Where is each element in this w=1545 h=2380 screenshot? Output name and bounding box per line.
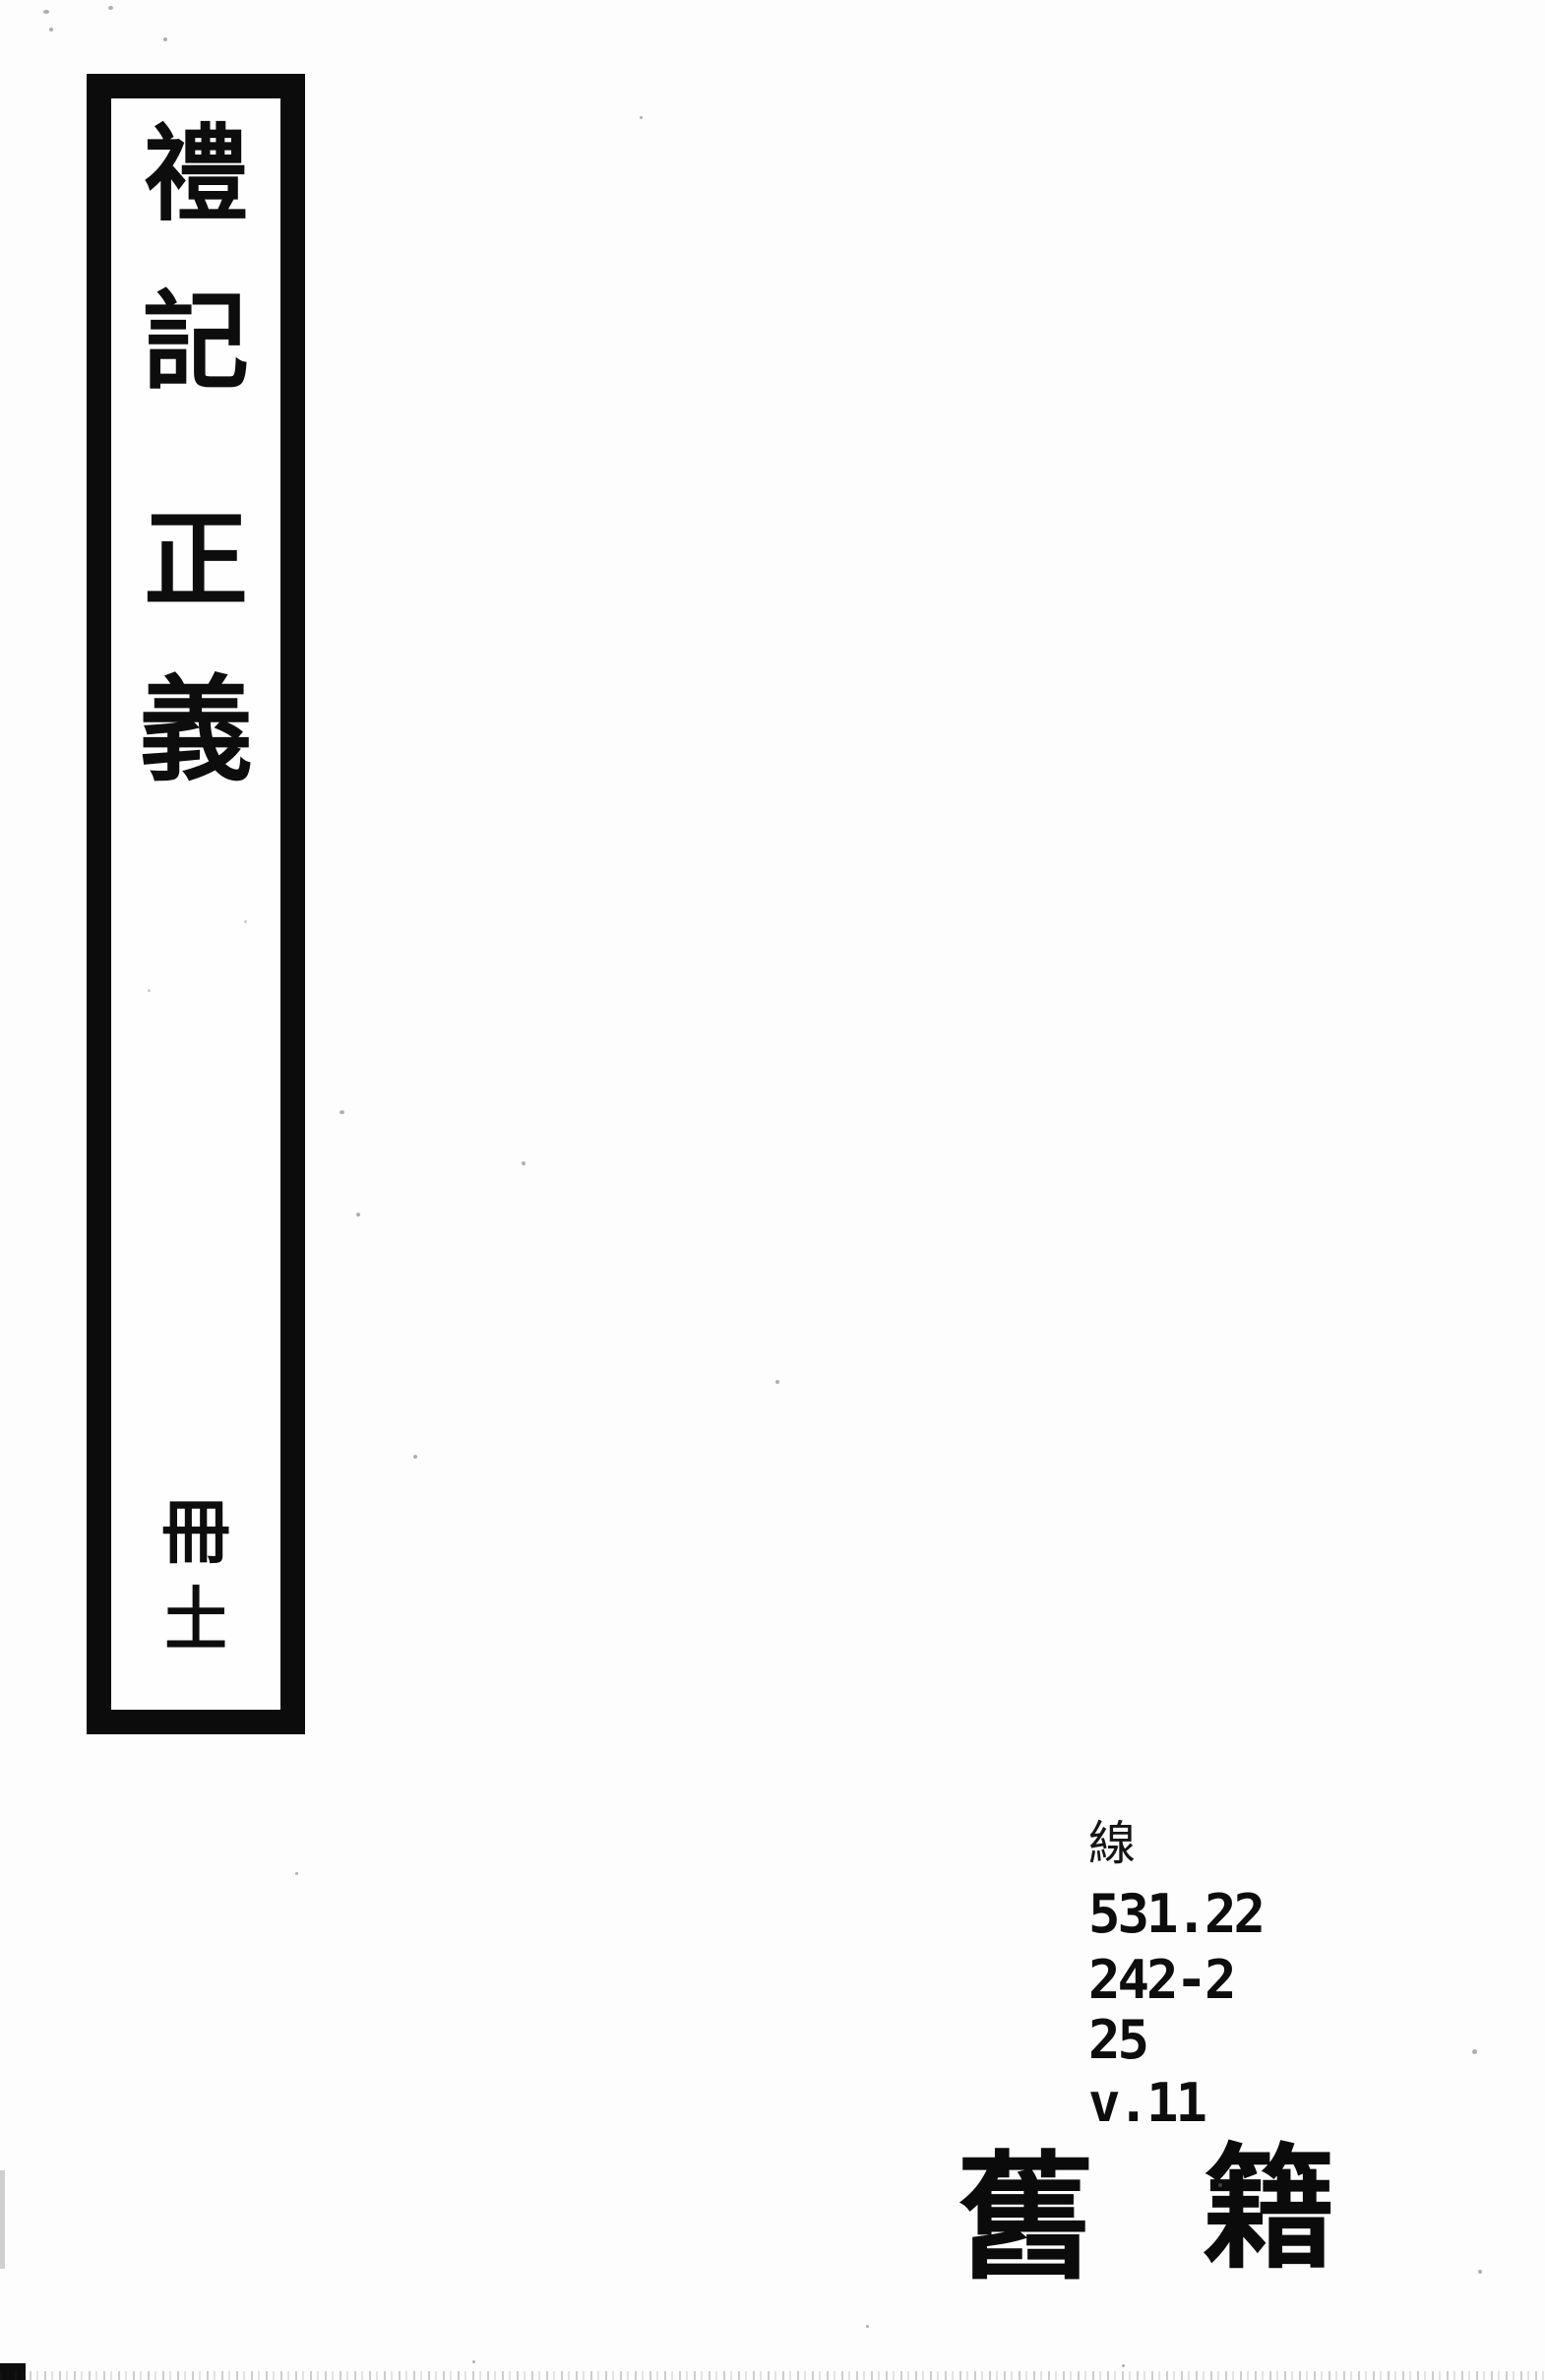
scan-bottom-noise [0, 2371, 1545, 2380]
title-char-3: 正 [144, 510, 248, 614]
call-number-line-3: 25 [1088, 2014, 1146, 2067]
scan-speck [356, 1213, 360, 1217]
scan-speck [472, 2360, 475, 2363]
stamp-char-2: 籍 [1203, 2144, 1336, 2278]
call-number-line-2: 242-2 [1088, 1954, 1234, 2007]
volume-char-3: 一 [165, 1617, 226, 1678]
scan-speck [1472, 2049, 1477, 2054]
title-char-2: 記 [143, 291, 249, 398]
scan-speck [1478, 2270, 1482, 2274]
call-number-line-1: 531.22 [1088, 1888, 1263, 1941]
title-char-4: 義 [139, 675, 253, 789]
scan-speck [108, 6, 113, 10]
title-char-1: 禮 [144, 124, 248, 228]
stamp-char-1: 舊 [957, 2152, 1094, 2289]
scan-speck [522, 1161, 525, 1165]
call-number-material-label: 線 [1088, 1821, 1136, 1868]
scan-speck [640, 116, 643, 119]
volume-char-1: 冊 [161, 1500, 230, 1569]
scan-speck [43, 10, 49, 14]
scan-speck [244, 920, 247, 923]
scan-speck [340, 1110, 344, 1114]
scan-edge-smudge [0, 2170, 5, 2269]
scan-speck [775, 1380, 779, 1384]
scan-speck [1218, 2183, 1222, 2187]
scan-speck [148, 989, 151, 992]
call-number-line-4: v.11 [1088, 2077, 1205, 2130]
scanned-page: 禮 記 正 義 冊 十 一 線 531.22 242-2 25 v.11 舊 籍 [0, 0, 1545, 2380]
spine-label-box: 禮 記 正 義 冊 十 一 [87, 74, 305, 1734]
scan-speck [413, 1455, 417, 1459]
scan-speck [1122, 2364, 1125, 2367]
scan-speck [295, 1872, 298, 1875]
scan-speck [163, 37, 167, 41]
scan-speck [49, 28, 53, 31]
scan-speck [866, 2325, 869, 2328]
